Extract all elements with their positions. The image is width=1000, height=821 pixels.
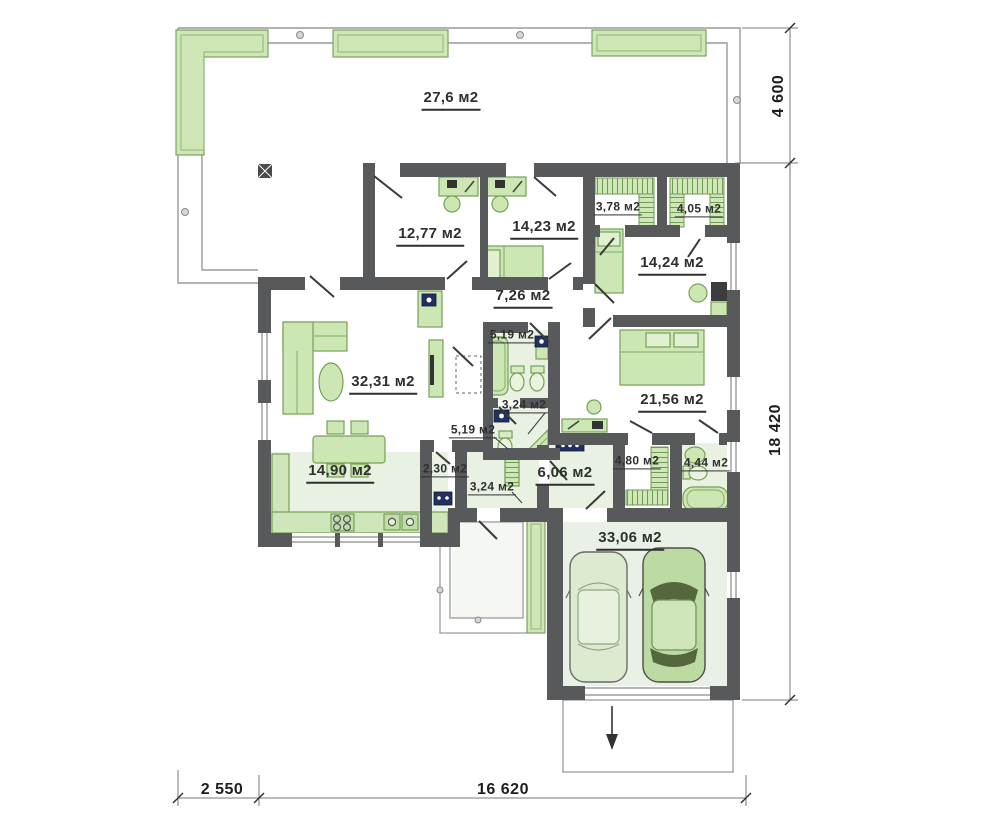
bathtub-bottom bbox=[683, 487, 728, 511]
pantry-shelf-icon bbox=[434, 492, 452, 505]
column-marker bbox=[258, 164, 272, 178]
label-bathroom-bottom: 4,44 м2 bbox=[682, 456, 730, 471]
label-vestibule: 3,24 м2 bbox=[468, 480, 516, 495]
label-wc: 5,19 м2 bbox=[449, 423, 497, 438]
label-living-room: 32,31 м2 bbox=[349, 374, 417, 395]
dim-terrace-depth: 4 600 bbox=[771, 75, 787, 118]
desk-bedroom-mid bbox=[487, 177, 526, 212]
coffee-table bbox=[319, 363, 343, 401]
label-pantry: 2,30 м2 bbox=[421, 462, 469, 477]
bidet-top bbox=[530, 366, 544, 391]
floor-plan: 27,6 м2 12,77 м2 14,23 м2 3,78 м2 4,05 м… bbox=[0, 0, 1000, 821]
driveway-outline bbox=[563, 700, 733, 772]
label-shower-room: 3,24 м2 bbox=[500, 398, 548, 413]
car-left bbox=[566, 552, 631, 682]
driveway-arrow-icon bbox=[606, 706, 618, 750]
label-bedroom-mid: 14,23 м2 bbox=[510, 219, 578, 240]
label-terrace: 27,6 м2 bbox=[422, 90, 481, 111]
desk-bedroom-left bbox=[439, 177, 478, 212]
label-wardrobe-b: 4,05 м2 bbox=[675, 202, 723, 217]
dim-house-width: 16 620 bbox=[477, 782, 529, 798]
garage-door-line bbox=[585, 688, 710, 695]
label-wardrobe-a: 3,78 м2 bbox=[594, 200, 642, 215]
label-bathroom-top: 5,19 м2 bbox=[488, 328, 536, 343]
dressing-table bbox=[562, 400, 607, 432]
label-walkin-closet: 4,80 м2 bbox=[613, 454, 661, 469]
toilet-top bbox=[510, 366, 524, 391]
label-entry-hall: 6,06 м2 bbox=[536, 465, 595, 486]
label-kitchen: 14,90 м2 bbox=[306, 463, 374, 484]
bed-double bbox=[620, 330, 704, 385]
dim-offset-left: 2 550 bbox=[201, 782, 244, 798]
label-bedroom-master: 21,56 м2 bbox=[638, 392, 706, 413]
dim-house-depth: 18 420 bbox=[768, 404, 784, 456]
label-bedroom-left: 12,77 м2 bbox=[396, 226, 464, 247]
label-garage: 33,06 м2 bbox=[596, 530, 664, 551]
label-bedroom-right: 14,24 м2 bbox=[638, 255, 706, 276]
car-right bbox=[639, 548, 709, 682]
label-hallway: 7,26 м2 bbox=[494, 288, 553, 309]
bed-single-right bbox=[595, 229, 623, 293]
